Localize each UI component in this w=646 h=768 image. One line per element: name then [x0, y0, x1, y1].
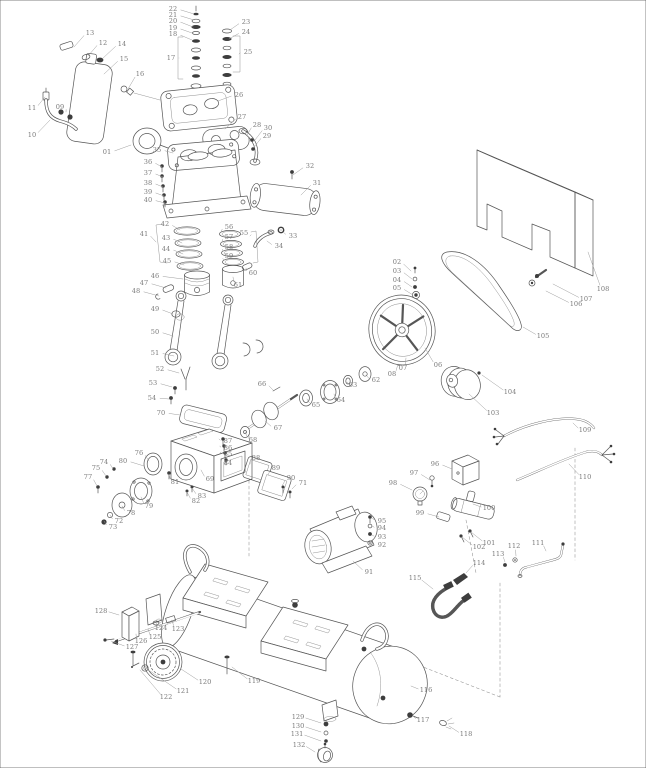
part-label-131: 131	[291, 730, 304, 738]
part-label-14: 14	[118, 40, 126, 48]
part-label-03: 03	[393, 267, 401, 275]
part-label-113: 113	[492, 550, 505, 558]
leader-line	[187, 492, 190, 498]
leader-line	[131, 462, 144, 466]
leader-line	[443, 465, 452, 469]
part-label-34: 34	[275, 242, 283, 250]
part-label-25: 25	[244, 48, 252, 56]
leader-line	[161, 384, 172, 387]
part-label-05: 05	[393, 284, 401, 292]
leader-line	[181, 10, 194, 14]
leader-line	[466, 565, 473, 573]
leader-line	[163, 333, 173, 336]
leader-line	[396, 364, 398, 371]
leader-line	[102, 46, 116, 59]
aftercooler-drawing	[249, 170, 322, 246]
leader-line	[301, 185, 311, 195]
part-label-10: 10	[28, 131, 36, 139]
part-label-45: 45	[163, 257, 171, 265]
part-label-17: 17	[167, 54, 175, 62]
leader-line	[250, 235, 251, 236]
leader-line	[144, 292, 159, 296]
part-label-122: 122	[160, 693, 173, 701]
leader-line	[222, 249, 223, 251]
part-label-48: 48	[132, 287, 140, 295]
part-label-69: 69	[206, 475, 214, 483]
leader-line	[110, 464, 113, 469]
part-label-08: 08	[388, 370, 396, 378]
part-label-01: 01	[103, 148, 111, 156]
leader-line	[38, 97, 45, 105]
leader-line	[469, 394, 487, 411]
part-label-114: 114	[473, 559, 486, 567]
part-label-24: 24	[242, 28, 250, 36]
part-label-62: 62	[372, 376, 380, 384]
leader-line	[404, 290, 413, 295]
part-label-09: 09	[56, 103, 64, 111]
leader-line	[588, 252, 600, 285]
part-label-59: 59	[225, 252, 233, 260]
part-label-127: 127	[126, 643, 139, 651]
breather-drawing	[169, 367, 190, 404]
part-label-33: 33	[289, 232, 297, 240]
leader-line	[163, 310, 173, 314]
part-label-100: 100	[483, 504, 496, 512]
part-label-30: 30	[264, 124, 272, 132]
part-label-53: 53	[149, 379, 157, 387]
leader-line	[292, 485, 296, 489]
part-label-97: 97	[410, 469, 418, 477]
part-label-125: 125	[149, 633, 162, 641]
part-label-123: 123	[172, 625, 185, 633]
pulley-setscrew	[477, 371, 480, 374]
leader-line	[422, 580, 433, 589]
part-label-92: 92	[378, 541, 386, 549]
crankcase-drawing	[167, 429, 252, 496]
part-label-75: 75	[92, 464, 100, 472]
leader-line	[449, 726, 459, 732]
leader-line	[553, 284, 579, 297]
part-label-79: 79	[145, 502, 153, 510]
part-label-83: 83	[198, 492, 206, 500]
part-label-29: 29	[263, 132, 271, 140]
part-label-06: 06	[434, 361, 442, 369]
part-label-98: 98	[389, 479, 397, 487]
leader-line	[421, 475, 430, 480]
leader-line	[115, 145, 131, 151]
leader-line	[353, 561, 362, 570]
part-label-96: 96	[431, 460, 439, 468]
leader-line	[102, 470, 106, 476]
part-label-74: 74	[100, 458, 108, 466]
part-label-95: 95	[378, 517, 386, 525]
leader-line	[181, 669, 198, 680]
part-label-58: 58	[225, 243, 233, 251]
part-label-110: 110	[579, 473, 592, 481]
part-label-57: 57	[225, 233, 233, 241]
part-label-27: 27	[238, 113, 246, 121]
cylinder-head-drawing	[160, 84, 238, 132]
part-label-91: 91	[365, 568, 373, 576]
part-label-117: 117	[417, 716, 430, 724]
part-label-35: 35	[153, 146, 161, 154]
leader-line	[401, 484, 412, 490]
leader-line	[192, 488, 196, 494]
part-label-15: 15	[120, 55, 128, 63]
leader-line	[230, 24, 239, 30]
leader-line	[573, 423, 578, 428]
part-label-51: 51	[151, 349, 159, 357]
connecting-rods-drawing	[165, 291, 263, 369]
pulley-drawing	[438, 361, 483, 404]
part-label-65: 65	[312, 401, 320, 409]
part-label-99: 99	[416, 509, 424, 517]
part-label-90: 90	[287, 474, 295, 482]
part-label-64: 64	[337, 396, 345, 404]
leader-line	[38, 120, 50, 132]
leader-line	[181, 22, 193, 27]
part-label-89: 89	[272, 464, 280, 472]
part-label-54: 54	[148, 394, 156, 402]
tank-drawing	[103, 546, 454, 763]
part-label-121: 121	[177, 687, 190, 695]
part-label-103: 103	[487, 409, 500, 417]
leader-line	[404, 282, 412, 287]
part-label-11: 11	[28, 104, 36, 112]
unloader-tube-28-30-drawing	[239, 128, 260, 165]
leader-line	[94, 480, 97, 486]
part-label-70: 70	[157, 409, 165, 417]
exploded-parts-diagram: 0102030405060708091011121314151617181920…	[0, 0, 646, 768]
leader-line	[306, 747, 315, 752]
part-label-50: 50	[151, 328, 159, 336]
part-label-36: 36	[144, 158, 152, 166]
part-label-23: 23	[242, 18, 250, 26]
part-label-116: 116	[420, 686, 433, 694]
part-label-88: 88	[252, 454, 260, 462]
part-label-104: 104	[504, 388, 517, 396]
crankcase-gasket-drawing	[178, 404, 227, 434]
part-label-46: 46	[151, 272, 159, 280]
part-label-16: 16	[136, 70, 144, 78]
part-label-44: 44	[162, 245, 170, 253]
part-label-55: 55	[240, 229, 248, 237]
leader-line	[181, 35, 192, 40]
leader-line	[152, 284, 166, 288]
part-label-66: 66	[258, 380, 266, 388]
part-label-22: 22	[169, 5, 177, 13]
part-label-28: 28	[253, 121, 261, 129]
part-label-87: 87	[224, 437, 232, 445]
leader-line	[109, 612, 119, 615]
part-label-86: 86	[224, 444, 232, 452]
leader-line	[151, 236, 156, 242]
part-label-124: 124	[155, 624, 168, 632]
part-label-19: 19	[169, 24, 177, 32]
part-label-102: 102	[473, 543, 486, 551]
part-label-61: 61	[234, 281, 242, 289]
belt-drawing	[442, 252, 522, 331]
part-label-93: 93	[378, 533, 386, 541]
part-label-128: 128	[95, 607, 108, 615]
part-label-130: 130	[292, 722, 305, 730]
part-label-42: 42	[161, 220, 169, 228]
air-filter-drawing	[133, 128, 168, 154]
part-label-109: 109	[579, 426, 592, 434]
part-label-04: 04	[393, 276, 401, 284]
part-label-49: 49	[151, 305, 159, 313]
leader-line	[181, 16, 194, 20]
leader-line	[168, 370, 179, 373]
wires-drawing	[493, 419, 616, 480]
part-label-129: 129	[292, 713, 305, 721]
part-label-111: 111	[532, 539, 545, 547]
part-label-118: 118	[460, 730, 473, 738]
part-label-80: 80	[119, 457, 127, 465]
part-label-43: 43	[162, 234, 170, 242]
part-label-73: 73	[109, 523, 117, 531]
leader-line	[74, 36, 84, 47]
leader-line	[232, 667, 247, 679]
part-label-115: 115	[409, 574, 422, 582]
part-label-84: 84	[224, 459, 232, 467]
part-label-39: 39	[144, 188, 152, 196]
flywheel-drawing	[362, 267, 443, 372]
leader-line	[293, 168, 303, 175]
leader-line	[523, 327, 536, 334]
part-label-38: 38	[144, 179, 152, 187]
part-label-31: 31	[313, 179, 321, 187]
part-label-105: 105	[537, 332, 550, 340]
part-label-07: 07	[399, 364, 407, 372]
part-label-32: 32	[306, 162, 314, 170]
part-label-119: 119	[248, 677, 261, 685]
part-label-37: 37	[144, 169, 152, 177]
part-label-94: 94	[378, 524, 386, 532]
part-label-108: 108	[597, 285, 610, 293]
leader-line	[546, 291, 569, 302]
part-label-26: 26	[235, 91, 243, 99]
leader-line	[404, 264, 411, 271]
part-label-77: 77	[84, 473, 92, 481]
leader-line	[306, 718, 321, 723]
part-label-47: 47	[140, 279, 148, 287]
part-label-63: 63	[349, 381, 357, 389]
leader-line	[269, 386, 273, 390]
part-label-52: 52	[156, 365, 164, 373]
crankshaft-drawing	[240, 354, 411, 438]
leader-line	[267, 241, 272, 244]
leader-line	[163, 276, 183, 279]
belt-guard-drawing	[477, 150, 593, 286]
leader-line	[404, 273, 412, 279]
part-label-76: 76	[135, 449, 143, 457]
part-label-67: 67	[274, 424, 282, 432]
part-label-78: 78	[127, 509, 135, 517]
part-label-13: 13	[86, 29, 94, 37]
leader-line	[160, 398, 169, 399]
leader-line	[306, 727, 321, 732]
part-label-56: 56	[225, 223, 233, 231]
leader-line	[181, 29, 192, 33]
leader-line	[104, 61, 118, 74]
leader-line	[569, 464, 579, 474]
part-label-60: 60	[249, 269, 257, 277]
leader-line	[482, 375, 503, 390]
leader-line	[128, 77, 135, 89]
part-label-02: 02	[393, 258, 401, 266]
motor-drawing	[302, 506, 380, 573]
part-label-132: 132	[293, 741, 306, 749]
part-label-81: 81	[171, 478, 179, 486]
leader-line	[305, 735, 321, 741]
part-label-112: 112	[508, 542, 521, 550]
pressure-switch-assembly-drawing	[413, 455, 498, 542]
part-label-120: 120	[199, 678, 212, 686]
part-label-40: 40	[144, 196, 152, 204]
part-label-68: 68	[249, 436, 257, 444]
leader-line	[229, 34, 239, 39]
part-label-107: 107	[580, 295, 593, 303]
diagram-page: 0102030405060708091011121314151617181920…	[0, 0, 646, 768]
bolt-13	[59, 41, 73, 51]
part-label-41: 41	[140, 230, 148, 238]
leader-line	[169, 413, 180, 415]
part-label-71: 71	[299, 479, 307, 487]
part-label-12: 12	[99, 39, 107, 47]
